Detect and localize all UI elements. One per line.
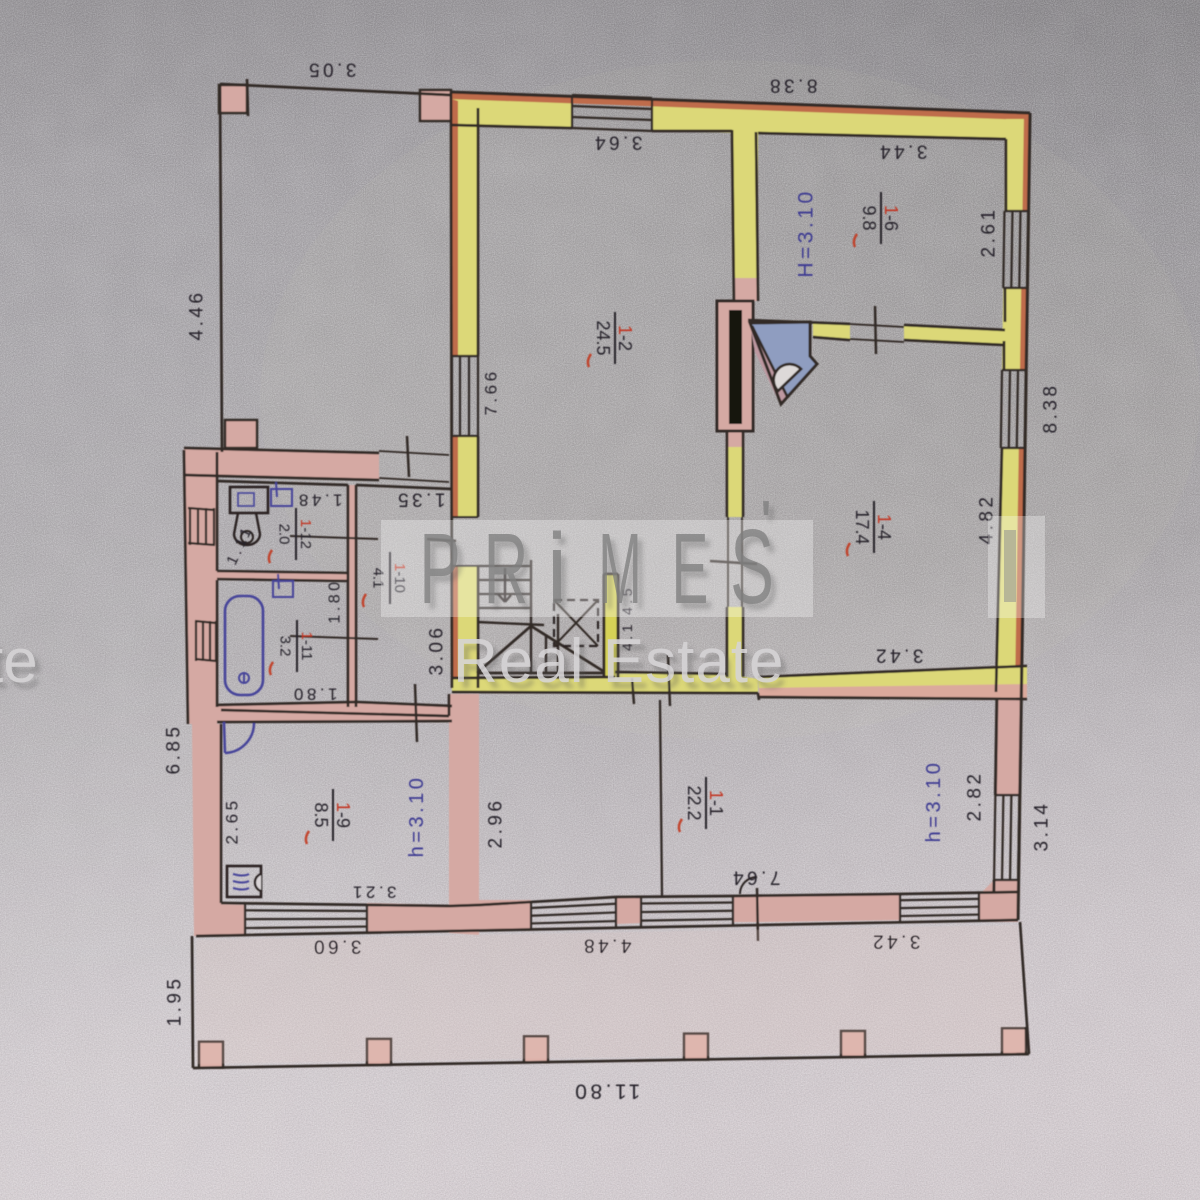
svg-text:h=3.10: h=3.10 [923, 760, 945, 843]
svg-text:8.38: 8.38 [1041, 383, 1062, 434]
svg-text:22.2: 22.2 [684, 785, 704, 820]
svg-text:1.95: 1.95 [165, 976, 186, 1027]
svg-text:i: i [547, 514, 567, 625]
svg-text:R: R [484, 513, 529, 625]
svg-text:1-2: 1-2 [615, 325, 635, 351]
svg-text:17.4: 17.4 [852, 509, 872, 544]
svg-text:7.64: 7.64 [730, 867, 781, 888]
svg-text:4.48: 4.48 [581, 935, 632, 956]
svg-text:1.35: 1.35 [395, 489, 446, 510]
svg-text:3.14: 3.14 [1032, 801, 1053, 852]
svg-text:2.61: 2.61 [979, 207, 1000, 258]
svg-text:Real Estate: Real Estate [453, 627, 785, 696]
svg-text:1-4: 1-4 [874, 514, 894, 540]
svg-text:3.2: 3.2 [277, 636, 294, 657]
svg-text:te: te [0, 627, 38, 696]
svg-text:3.60: 3.60 [311, 936, 362, 957]
svg-text:4.46: 4.46 [187, 290, 208, 341]
svg-text:1-12: 1-12 [298, 519, 315, 549]
svg-text:9.8: 9.8 [859, 205, 879, 230]
svg-text:E: E [672, 514, 709, 626]
svg-text:3.44: 3.44 [877, 141, 928, 162]
svg-text:2.0: 2.0 [276, 524, 293, 545]
svg-text:2.96: 2.96 [486, 798, 507, 849]
svg-text:1-11: 1-11 [299, 632, 316, 661]
svg-text:h=3.10: h=3.10 [406, 775, 428, 858]
svg-text:2.82: 2.82 [965, 771, 986, 822]
svg-text:1.48: 1.48 [295, 491, 342, 510]
svg-text:3.42: 3.42 [870, 931, 921, 952]
svg-text:3.05: 3.05 [306, 59, 357, 80]
svg-text:H=3.10: H=3.10 [795, 188, 818, 277]
svg-text:1-1: 1-1 [706, 790, 726, 816]
svg-text:P: P [419, 513, 460, 625]
svg-text:3.64: 3.64 [592, 132, 643, 153]
svg-text:M: M [598, 513, 641, 625]
svg-text:7.66: 7.66 [482, 368, 501, 415]
svg-text:3.21: 3.21 [349, 883, 396, 902]
svg-text:3.42: 3.42 [873, 645, 924, 666]
svg-text:1-9: 1-9 [333, 802, 353, 828]
svg-text:1-6: 1-6 [881, 205, 901, 231]
svg-text:24.5: 24.5 [593, 320, 613, 355]
svg-text:8.38: 8.38 [767, 75, 818, 96]
svg-text:11.80: 11.80 [572, 1080, 641, 1103]
svg-text:2.65: 2.65 [223, 797, 242, 844]
svg-text:8.5: 8.5 [311, 802, 331, 827]
svg-text:6.85: 6.85 [164, 724, 185, 775]
svg-text:': ' [760, 487, 772, 559]
svg-text:1.80: 1.80 [327, 578, 344, 623]
svg-text:1.80: 1.80 [290, 685, 337, 704]
svg-text:3.06: 3.06 [427, 625, 448, 676]
